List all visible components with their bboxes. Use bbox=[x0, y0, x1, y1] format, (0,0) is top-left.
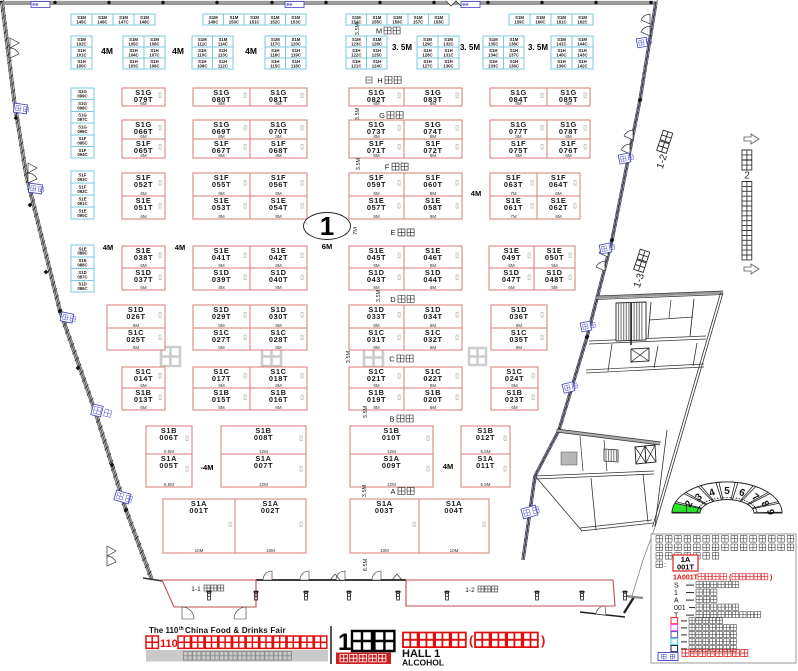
svg-text:033T: 033T bbox=[367, 312, 386, 321]
svg-text:8M: 8M bbox=[218, 405, 225, 410]
svg-text:032T: 032T bbox=[423, 335, 442, 344]
svg-text:C: C bbox=[389, 354, 395, 363]
svg-text:135C: 135C bbox=[488, 41, 498, 46]
svg-text:136C: 136C bbox=[509, 63, 519, 68]
svg-text:002T: 002T bbox=[261, 506, 280, 515]
svg-text:120C: 120C bbox=[291, 41, 301, 46]
svg-text:105C: 105C bbox=[128, 41, 138, 46]
svg-text:B: B bbox=[389, 414, 394, 423]
svg-text:8M: 8M bbox=[218, 153, 225, 158]
svg-text:028T: 028T bbox=[269, 335, 288, 344]
svg-text:3. 5M: 3. 5M bbox=[528, 43, 548, 52]
svg-text:A: A bbox=[674, 598, 679, 605]
svg-text:1-2: 1-2 bbox=[465, 587, 475, 594]
svg-text:121C: 121C bbox=[351, 63, 361, 68]
svg-text:4M: 4M bbox=[101, 46, 113, 56]
svg-text:062T: 062T bbox=[549, 203, 568, 212]
svg-text:8M: 8M bbox=[430, 153, 437, 158]
svg-text:095C: 095C bbox=[77, 141, 87, 146]
svg-text:5M: 5M bbox=[551, 285, 558, 290]
svg-text:003T: 003T bbox=[375, 506, 394, 515]
svg-text:004T: 004T bbox=[444, 506, 463, 515]
svg-text:3.5M: 3.5M bbox=[363, 405, 369, 418]
svg-text:153C: 153C bbox=[291, 19, 301, 24]
svg-text:(: ( bbox=[469, 633, 474, 648]
svg-text:101C: 101C bbox=[76, 52, 86, 57]
svg-text:144C: 144C bbox=[577, 41, 587, 46]
svg-text:6M: 6M bbox=[322, 242, 332, 251]
svg-text:1-1: 1-1 bbox=[191, 586, 201, 593]
svg-text:023T: 023T bbox=[505, 395, 524, 404]
svg-text:130C: 130C bbox=[443, 63, 453, 68]
svg-text:048T: 048T bbox=[545, 275, 564, 284]
svg-text:038T: 038T bbox=[134, 253, 153, 262]
svg-text:3.5M: 3.5M bbox=[346, 350, 352, 363]
svg-text:122C: 122C bbox=[351, 52, 361, 57]
svg-text:089C: 089C bbox=[77, 251, 87, 256]
svg-text:10M: 10M bbox=[266, 548, 275, 553]
svg-text:010T: 010T bbox=[382, 433, 401, 442]
svg-text:113C: 113C bbox=[218, 52, 228, 57]
svg-text:116C: 116C bbox=[270, 52, 280, 57]
svg-text:050T: 050T bbox=[545, 253, 564, 262]
svg-text:G: G bbox=[379, 111, 385, 120]
svg-text:102C: 102C bbox=[76, 41, 86, 46]
svg-text:137C: 137C bbox=[509, 52, 519, 57]
svg-text:China Food & Drinks Fair: China Food & Drinks Fair bbox=[185, 626, 286, 635]
svg-text:3.5M: 3.5M bbox=[356, 157, 362, 170]
svg-text:-4M: -4M bbox=[201, 463, 214, 472]
svg-text:133C: 133C bbox=[488, 63, 498, 68]
svg-text:4M: 4M bbox=[471, 189, 481, 198]
svg-text:D: D bbox=[390, 295, 396, 304]
svg-text:151C: 151C bbox=[249, 19, 259, 24]
svg-text:157C: 157C bbox=[413, 19, 423, 24]
svg-text:8M: 8M bbox=[515, 153, 522, 158]
svg-text:8M: 8M bbox=[373, 153, 380, 158]
svg-text:8M: 8M bbox=[275, 405, 282, 410]
svg-text:007T: 007T bbox=[254, 461, 273, 470]
svg-text:107C: 107C bbox=[149, 52, 159, 57]
svg-text:110: 110 bbox=[160, 638, 178, 650]
svg-text:035T: 035T bbox=[509, 335, 528, 344]
svg-text:8M: 8M bbox=[373, 345, 380, 350]
svg-text:020T: 020T bbox=[423, 395, 442, 404]
svg-text:098C: 098C bbox=[77, 105, 87, 110]
svg-text:055T: 055T bbox=[212, 180, 231, 189]
svg-text:4M: 4M bbox=[103, 243, 113, 252]
svg-text:162C: 162C bbox=[577, 19, 587, 24]
svg-text:021T: 021T bbox=[367, 374, 386, 383]
svg-text:094C: 094C bbox=[77, 152, 87, 157]
svg-text:M: M bbox=[376, 26, 382, 35]
svg-text:1: 1 bbox=[674, 590, 678, 597]
svg-text:A: A bbox=[390, 487, 395, 496]
svg-text:031T: 031T bbox=[367, 335, 386, 344]
svg-text:108C: 108C bbox=[149, 41, 159, 46]
svg-text:086C: 086C bbox=[77, 286, 87, 291]
svg-text:005T: 005T bbox=[159, 461, 178, 470]
svg-text:8M: 8M bbox=[373, 101, 380, 106]
svg-text:6M: 6M bbox=[508, 285, 515, 290]
svg-text:092C: 092C bbox=[77, 189, 87, 194]
svg-text::: : bbox=[664, 562, 666, 569]
svg-text:6M: 6M bbox=[140, 285, 147, 290]
svg-text:4M: 4M bbox=[443, 462, 453, 471]
svg-text:3.5M: 3.5M bbox=[362, 484, 368, 497]
svg-text:8M: 8M bbox=[133, 345, 140, 350]
svg-text:056T: 056T bbox=[269, 180, 288, 189]
svg-text:030T: 030T bbox=[269, 312, 288, 321]
svg-text:013T: 013T bbox=[134, 395, 153, 404]
svg-text:): ) bbox=[770, 575, 772, 582]
svg-text:118C: 118C bbox=[291, 63, 301, 68]
svg-text:3.5M: 3.5M bbox=[355, 107, 361, 120]
svg-text:143C: 143C bbox=[577, 52, 587, 57]
svg-text:041T: 041T bbox=[212, 253, 231, 262]
svg-text:138C: 138C bbox=[509, 41, 519, 46]
svg-text:6M: 6M bbox=[140, 405, 147, 410]
svg-text:001T: 001T bbox=[677, 563, 695, 572]
svg-text:8M: 8M bbox=[430, 101, 437, 106]
svg-text:014T: 014T bbox=[134, 374, 153, 383]
svg-text:139C: 139C bbox=[556, 63, 566, 68]
svg-text:148C: 148C bbox=[139, 19, 149, 24]
svg-text:115C: 115C bbox=[270, 63, 280, 68]
svg-text:159C: 159C bbox=[514, 19, 524, 24]
svg-text:006T: 006T bbox=[159, 433, 178, 442]
svg-text:037T: 037T bbox=[134, 275, 153, 284]
svg-text:8M: 8M bbox=[373, 214, 380, 219]
svg-text:8M: 8M bbox=[373, 285, 380, 290]
svg-text:10M: 10M bbox=[450, 548, 459, 553]
svg-text:145C: 145C bbox=[76, 19, 86, 24]
svg-text:142C: 142C bbox=[577, 63, 587, 68]
svg-text:052T: 052T bbox=[134, 180, 153, 189]
svg-text:155C: 155C bbox=[372, 19, 382, 24]
svg-text:6.5M: 6.5M bbox=[480, 482, 490, 487]
svg-text:): ) bbox=[541, 633, 545, 648]
svg-text:096C: 096C bbox=[77, 129, 87, 134]
svg-text:015T: 015T bbox=[212, 395, 231, 404]
svg-text:158C: 158C bbox=[434, 19, 444, 24]
svg-text:009T: 009T bbox=[382, 461, 401, 470]
svg-text:6M: 6M bbox=[140, 101, 147, 106]
svg-text:6M: 6M bbox=[140, 153, 147, 158]
svg-text:064T: 064T bbox=[549, 180, 568, 189]
svg-text:008T: 008T bbox=[254, 433, 273, 442]
svg-text:054T: 054T bbox=[269, 203, 288, 212]
svg-text:141C: 141C bbox=[556, 41, 566, 46]
svg-text:8M: 8M bbox=[430, 405, 437, 410]
svg-text:12M: 12M bbox=[259, 482, 268, 487]
svg-text:161C: 161C bbox=[556, 19, 566, 24]
svg-text:091C: 091C bbox=[77, 201, 87, 206]
svg-text:011T: 011T bbox=[476, 461, 495, 470]
svg-text:012T: 012T bbox=[476, 433, 495, 442]
svg-text:1: 1 bbox=[320, 211, 334, 241]
svg-text:042T: 042T bbox=[269, 253, 288, 262]
svg-text:2: 2 bbox=[744, 171, 750, 182]
svg-text:129C: 129C bbox=[422, 41, 432, 46]
svg-text:039T: 039T bbox=[212, 275, 231, 284]
svg-text:S: S bbox=[674, 583, 679, 590]
svg-text:7M: 7M bbox=[353, 227, 359, 235]
svg-text:087C: 087C bbox=[77, 274, 87, 279]
svg-text:045T: 045T bbox=[367, 253, 386, 262]
svg-text:097C: 097C bbox=[77, 117, 87, 122]
svg-text:123C: 123C bbox=[351, 41, 361, 46]
svg-text:6M: 6M bbox=[565, 101, 572, 106]
svg-text:051T: 051T bbox=[134, 203, 153, 212]
svg-text:022T: 022T bbox=[423, 374, 442, 383]
svg-text:8M: 8M bbox=[430, 345, 437, 350]
svg-text:10M: 10M bbox=[195, 548, 204, 553]
svg-text:090C: 090C bbox=[77, 213, 87, 218]
svg-text:126C: 126C bbox=[372, 41, 382, 46]
svg-text:047T: 047T bbox=[502, 275, 521, 284]
svg-text:8M: 8M bbox=[373, 405, 380, 410]
svg-text:099C: 099C bbox=[77, 94, 87, 99]
svg-text:4M: 4M bbox=[245, 46, 257, 56]
svg-text:132C: 132C bbox=[443, 41, 453, 46]
svg-text:152C: 152C bbox=[270, 19, 280, 24]
svg-text:060T: 060T bbox=[423, 180, 442, 189]
svg-text:111C: 111C bbox=[197, 41, 207, 46]
svg-text:146C: 146C bbox=[97, 19, 107, 24]
svg-text:4M: 4M bbox=[172, 46, 184, 56]
svg-text:117C: 117C bbox=[270, 41, 280, 46]
svg-text:8M: 8M bbox=[218, 285, 225, 290]
svg-text:The 110: The 110 bbox=[149, 626, 179, 635]
svg-text:3. 5M: 3. 5M bbox=[460, 43, 480, 52]
svg-text:001T: 001T bbox=[189, 506, 208, 515]
svg-text:E: E bbox=[390, 228, 395, 237]
svg-text:053T: 053T bbox=[212, 203, 231, 212]
svg-text:10M: 10M bbox=[380, 548, 389, 553]
svg-text:088C: 088C bbox=[77, 263, 87, 268]
svg-text:156C: 156C bbox=[392, 19, 402, 24]
svg-text:104C: 104C bbox=[128, 52, 138, 57]
svg-text:040T: 040T bbox=[269, 275, 288, 284]
svg-text:6M: 6M bbox=[555, 214, 562, 219]
svg-text:6M: 6M bbox=[140, 214, 147, 219]
svg-text:6.5M: 6.5M bbox=[363, 558, 369, 571]
svg-text:034T: 034T bbox=[423, 312, 442, 321]
svg-text:112C: 112C bbox=[218, 63, 228, 68]
svg-text:103C: 103C bbox=[128, 63, 138, 68]
svg-text:125C: 125C bbox=[372, 52, 382, 57]
svg-text:3.5M: 3.5M bbox=[355, 22, 361, 35]
svg-text:036T: 036T bbox=[509, 312, 528, 321]
svg-text:140C: 140C bbox=[556, 52, 566, 57]
svg-text:147C: 147C bbox=[118, 19, 128, 24]
svg-text:100C: 100C bbox=[76, 63, 86, 68]
svg-text:8M: 8M bbox=[275, 214, 282, 219]
svg-text:th: th bbox=[179, 626, 184, 632]
svg-text:6.5M: 6.5M bbox=[164, 482, 174, 487]
svg-text:3.5M: 3.5M bbox=[376, 289, 382, 302]
svg-text:106C: 106C bbox=[149, 63, 159, 68]
svg-text:001: 001 bbox=[674, 605, 686, 612]
svg-text:8M: 8M bbox=[430, 214, 437, 219]
svg-text:1: 1 bbox=[338, 629, 351, 656]
svg-text:110C: 110C bbox=[197, 52, 207, 57]
svg-text:114C: 114C bbox=[218, 41, 228, 46]
svg-text:8M: 8M bbox=[515, 101, 522, 106]
svg-text:1A001T: 1A001T bbox=[673, 575, 699, 582]
svg-text:5: 5 bbox=[724, 486, 730, 497]
svg-text:019T: 019T bbox=[367, 395, 386, 404]
svg-text:128C: 128C bbox=[422, 52, 432, 57]
svg-text:149C: 149C bbox=[208, 19, 218, 24]
svg-text:131C: 131C bbox=[443, 52, 453, 57]
svg-text:8M: 8M bbox=[218, 345, 225, 350]
svg-text:7M: 7M bbox=[510, 214, 517, 219]
svg-text:8M: 8M bbox=[430, 285, 437, 290]
svg-text:058T: 058T bbox=[423, 203, 442, 212]
svg-text:ALCOHOL: ALCOHOL bbox=[402, 658, 444, 667]
svg-text:8M: 8M bbox=[275, 101, 282, 106]
svg-text:043T: 043T bbox=[367, 275, 386, 284]
svg-text:109C: 109C bbox=[197, 63, 207, 68]
svg-text:029T: 029T bbox=[212, 312, 231, 321]
svg-text:057T: 057T bbox=[367, 203, 386, 212]
svg-text:024T: 024T bbox=[505, 374, 524, 383]
svg-text:044T: 044T bbox=[423, 275, 442, 284]
svg-text:F: F bbox=[385, 162, 390, 171]
svg-text:027T: 027T bbox=[212, 335, 231, 344]
svg-text:093C: 093C bbox=[77, 177, 87, 182]
svg-text:127C: 127C bbox=[422, 63, 432, 68]
svg-text:049T: 049T bbox=[502, 253, 521, 262]
svg-text:8M: 8M bbox=[516, 345, 523, 350]
svg-text:124C: 124C bbox=[372, 63, 382, 68]
svg-text:8M: 8M bbox=[275, 285, 282, 290]
svg-text:046T: 046T bbox=[423, 253, 442, 262]
svg-text:6M: 6M bbox=[565, 153, 572, 158]
svg-text:119C: 119C bbox=[291, 52, 301, 57]
svg-text:8M: 8M bbox=[218, 101, 225, 106]
svg-text:8M: 8M bbox=[275, 345, 282, 350]
svg-text:160C: 160C bbox=[535, 19, 545, 24]
svg-text:025T: 025T bbox=[126, 335, 145, 344]
svg-text:150C: 150C bbox=[229, 19, 239, 24]
svg-text:8M: 8M bbox=[275, 153, 282, 158]
svg-text:018T: 018T bbox=[269, 374, 288, 383]
svg-text:061T: 061T bbox=[504, 203, 523, 212]
svg-text:026T: 026T bbox=[126, 312, 145, 321]
svg-text:059T: 059T bbox=[367, 180, 386, 189]
svg-text:3. 5M: 3. 5M bbox=[392, 43, 412, 52]
svg-text:8M: 8M bbox=[218, 214, 225, 219]
svg-text:017T: 017T bbox=[212, 374, 231, 383]
svg-text:134C: 134C bbox=[488, 52, 498, 57]
svg-text:6M: 6M bbox=[511, 405, 518, 410]
svg-text:063T: 063T bbox=[504, 180, 523, 189]
svg-text:H: H bbox=[377, 76, 382, 85]
svg-text:4M: 4M bbox=[175, 243, 185, 252]
svg-text:016T: 016T bbox=[269, 395, 288, 404]
